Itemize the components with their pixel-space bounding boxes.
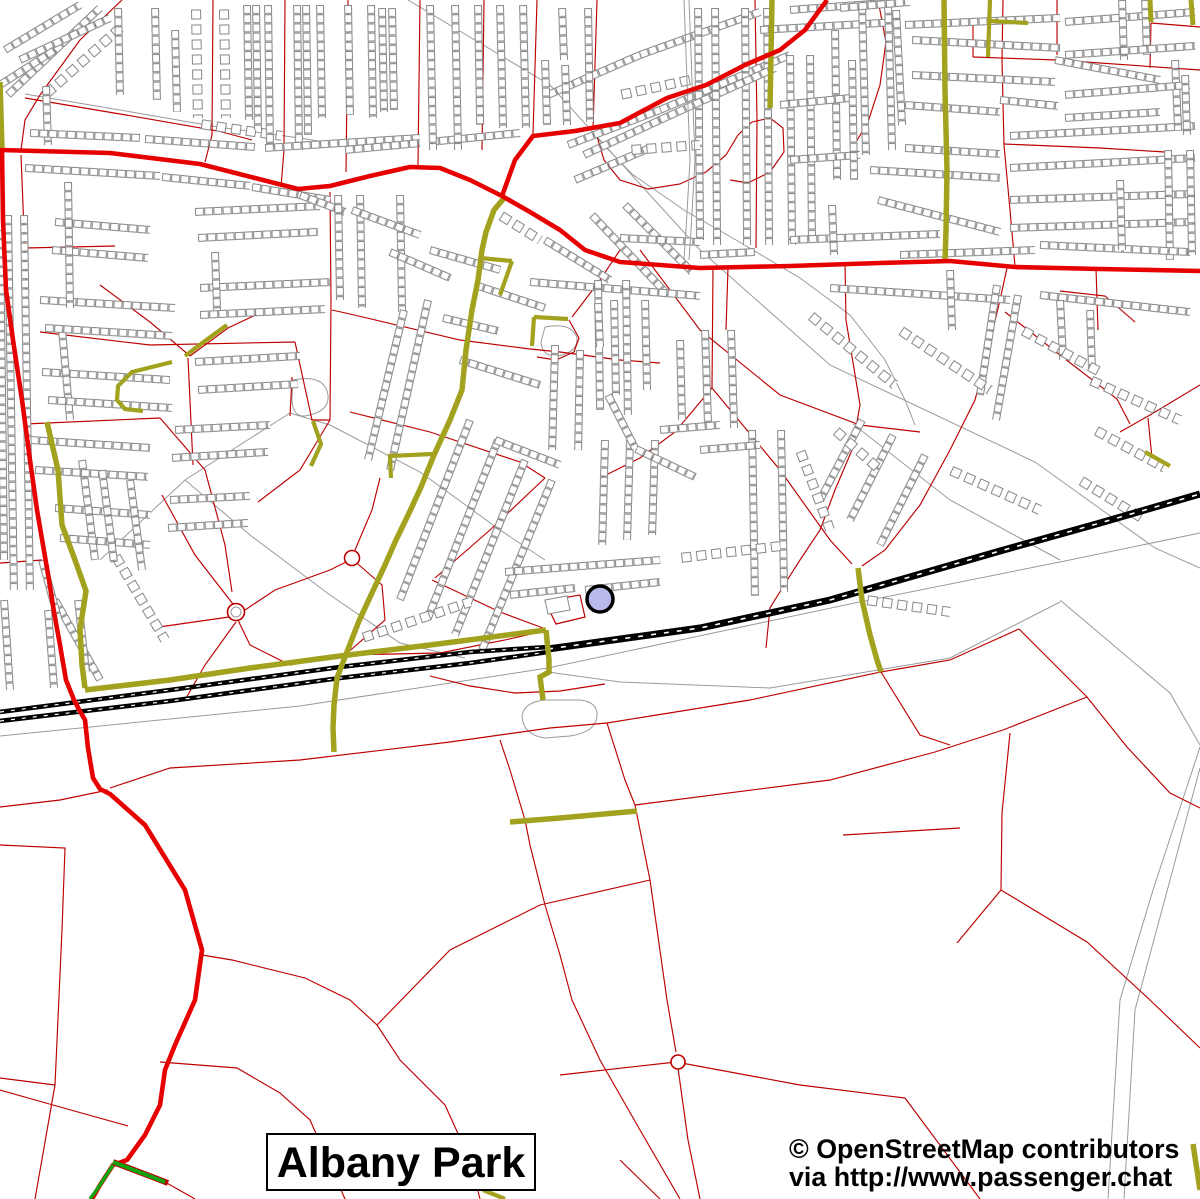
svg-text:Albany Park: Albany Park <box>277 1139 526 1187</box>
svg-text:© OpenStreetMap contributors: © OpenStreetMap contributors <box>789 1134 1179 1164</box>
svg-text:via http://www.passenger.chat: via http://www.passenger.chat <box>789 1162 1172 1192</box>
